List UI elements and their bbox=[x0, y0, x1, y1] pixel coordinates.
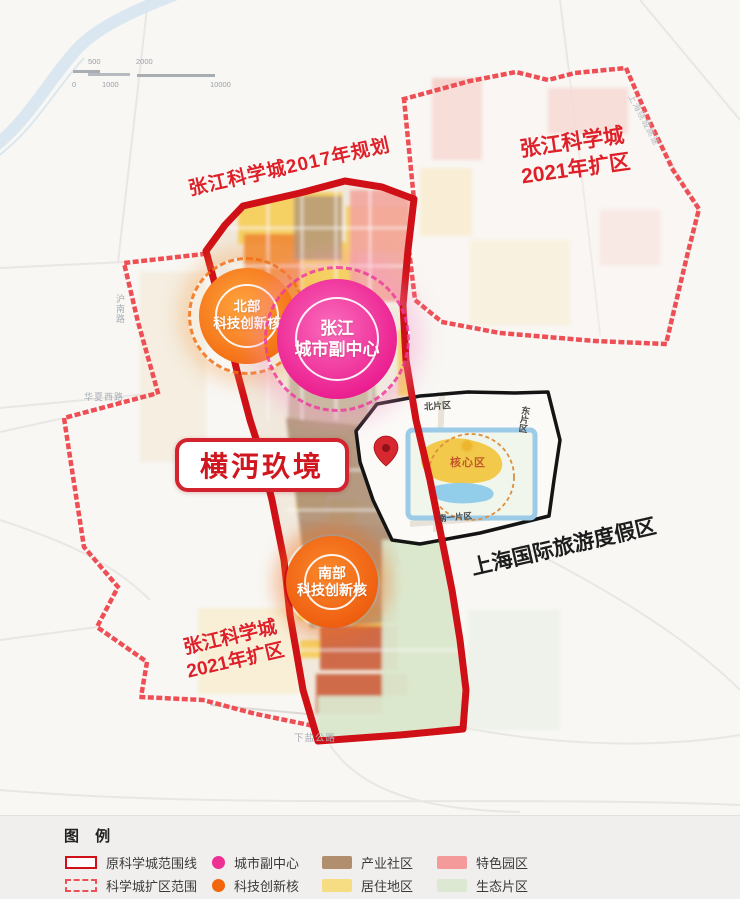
legend-item: 特色园区 bbox=[437, 854, 528, 870]
south-innovation-core: 南部 科技创新核 bbox=[284, 534, 380, 630]
scale-tick: 2000 bbox=[136, 57, 153, 66]
legend: 图 例 原科学城范围线 科学城扩区范围 城市副中心 科技创新核 产业社区 居住地… bbox=[0, 815, 740, 899]
legend-item: 城市副中心 bbox=[212, 854, 299, 870]
core-label: 张江 城市副中心 bbox=[295, 318, 380, 361]
legend-item: 生态片区 bbox=[437, 877, 528, 893]
resort-core-district-label: 核心区 bbox=[450, 454, 486, 470]
scale-tick: 0 bbox=[72, 80, 76, 89]
core-label-line: 南部 bbox=[297, 565, 367, 583]
legend-swatch-rect bbox=[322, 856, 352, 869]
resort-north-district-label: 北片区 bbox=[424, 398, 452, 413]
scale-tick: 10000 bbox=[210, 80, 231, 89]
core-label-line: 城市副中心 bbox=[295, 339, 380, 360]
scale-tick: 500 bbox=[88, 57, 101, 66]
legend-label: 产业社区 bbox=[361, 853, 413, 872]
legend-item: 科技创新核 bbox=[212, 877, 299, 893]
legend-swatch-rect bbox=[322, 879, 352, 892]
legend-swatch-outline bbox=[65, 856, 97, 869]
legend-title: 图 例 bbox=[64, 825, 116, 846]
legend-label: 科技创新核 bbox=[234, 876, 299, 895]
core-label-line: 张江 bbox=[295, 318, 380, 339]
legend-label: 原科学城范围线 bbox=[106, 853, 197, 872]
scale-segment bbox=[88, 73, 130, 76]
legend-label: 特色园区 bbox=[476, 853, 528, 872]
legend-item: 居住地区 bbox=[322, 877, 413, 893]
zhangjiang-city-subcenter: 张江 城市副中心 bbox=[264, 266, 410, 412]
legend-swatch-dashed bbox=[65, 879, 97, 892]
legend-label: 城市副中心 bbox=[234, 853, 299, 872]
legend-label: 居住地区 bbox=[361, 876, 413, 895]
legend-item: 产业社区 bbox=[322, 854, 413, 870]
map-canvas: 500 2000 0 1000 10000 张江科学城2017年规划 张江科学城… bbox=[0, 0, 740, 899]
road-label-huaxia: 华夏西路 bbox=[84, 390, 124, 403]
legend-swatch-rect bbox=[437, 879, 467, 892]
legend-label: 科学城扩区范围 bbox=[106, 876, 197, 895]
legend-swatch-dot bbox=[212, 879, 225, 892]
legend-label: 生态片区 bbox=[476, 876, 528, 895]
scale-segment bbox=[137, 74, 215, 77]
core-label-line: 科技创新核 bbox=[297, 582, 367, 600]
legend-swatch-dot bbox=[212, 856, 225, 869]
legend-item: 科学城扩区范围 bbox=[65, 877, 197, 893]
core-label: 南部 科技创新核 bbox=[297, 565, 367, 600]
legend-item: 原科学城范围线 bbox=[65, 854, 197, 870]
road-label-hunan: 沪南路 bbox=[114, 294, 127, 324]
road-label-xiayan: 下盐公路 bbox=[294, 730, 336, 744]
legend-swatch-rect bbox=[437, 856, 467, 869]
scale-tick: 1000 bbox=[102, 80, 119, 89]
scale-bar: 500 2000 0 1000 10000 bbox=[60, 55, 250, 91]
project-label-hengmian: 横沔玖境 bbox=[175, 438, 349, 492]
